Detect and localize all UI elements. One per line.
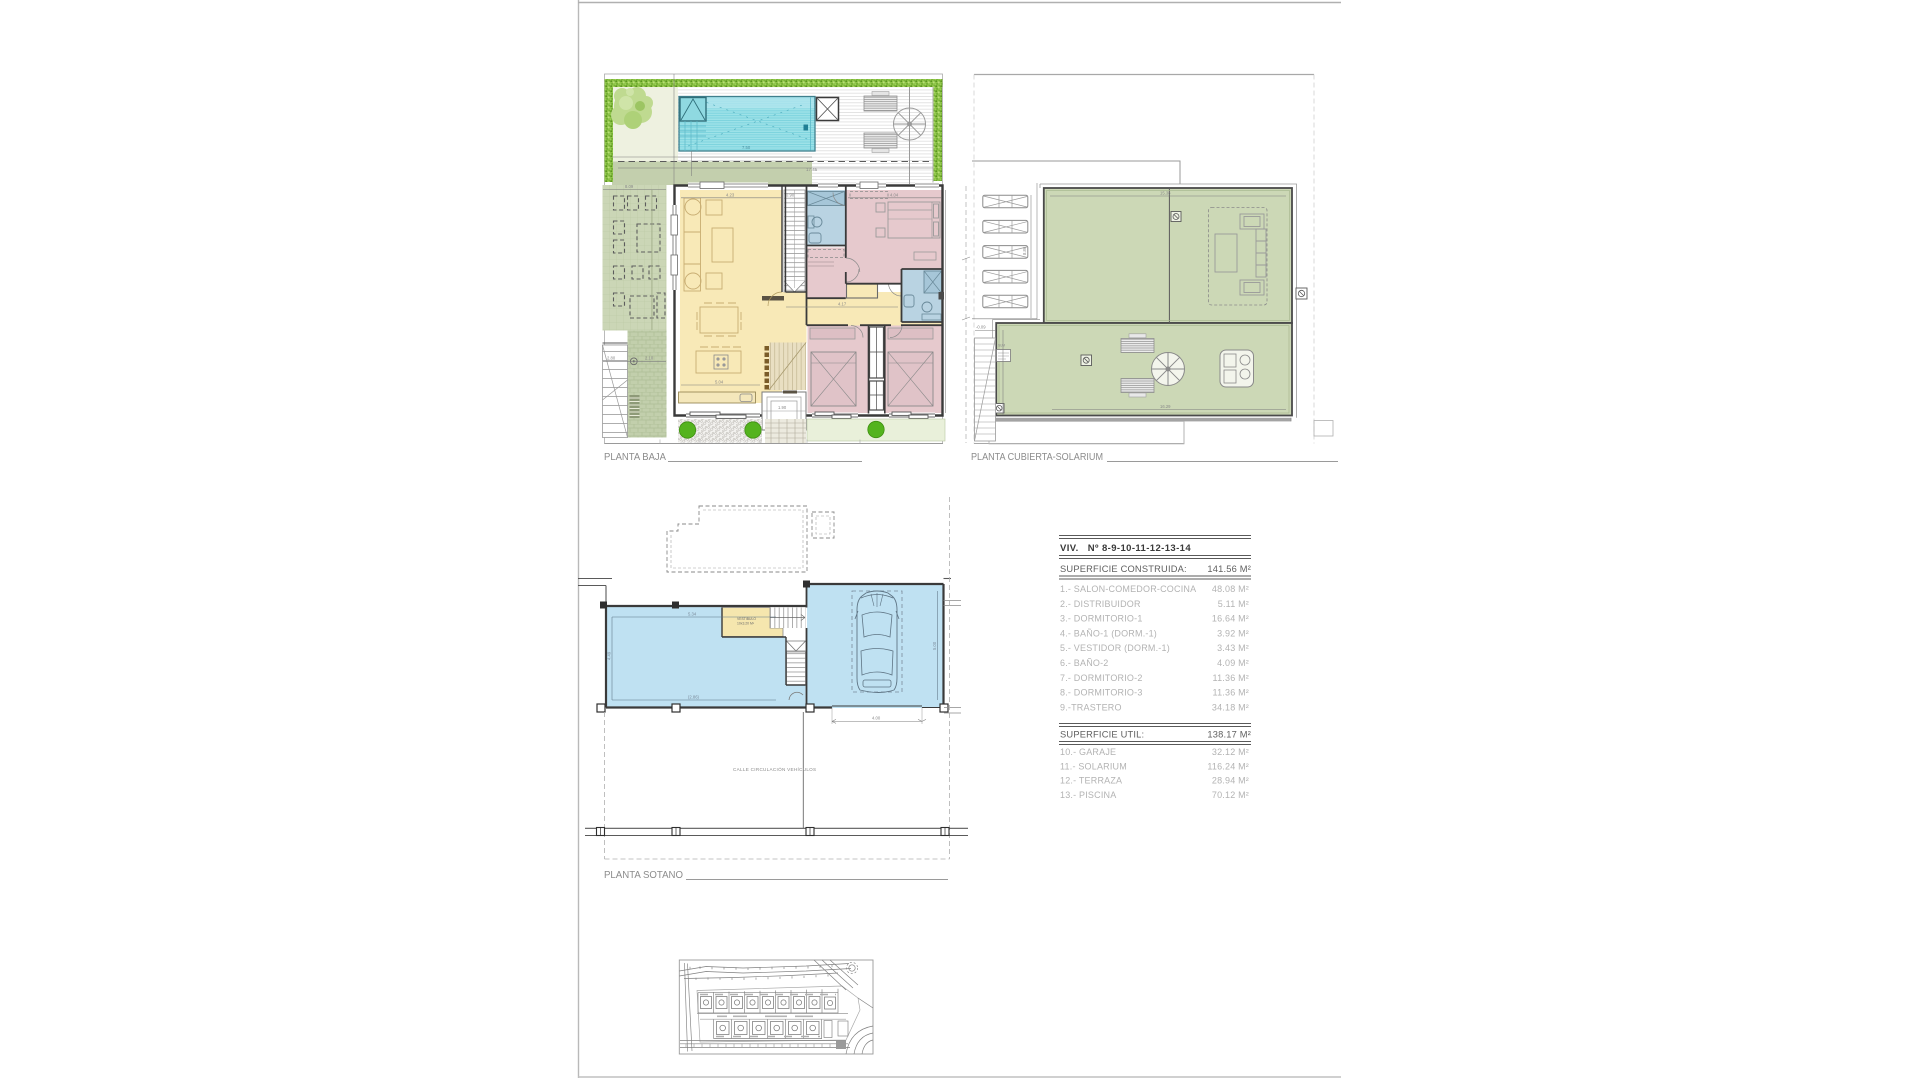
svg-text:4.49: 4.49 (607, 651, 612, 660)
svg-text:SUPERFICIE CONSTRUIDA:: SUPERFICIE CONSTRUIDA: (1060, 564, 1187, 574)
svg-text:116.24 M²: 116.24 M² (1207, 761, 1249, 771)
svg-text:70.12 M²: 70.12 M² (1212, 790, 1249, 800)
svg-text:PLANTA BAJA: PLANTA BAJA (604, 451, 666, 463)
svg-text:SUPERFICIE UTIL:: SUPERFICIE UTIL: (1060, 730, 1144, 740)
svg-text:5.00: 5.00 (932, 641, 937, 650)
svg-text:34.18 M²: 34.18 M² (1212, 702, 1249, 712)
svg-text:2.80: 2.80 (607, 356, 616, 361)
svg-text:VIV. Nº 8-9-10-11-12-13-14: VIV. Nº 8-9-10-11-12-13-14 (1060, 543, 1191, 554)
svg-text:8.09: 8.09 (625, 184, 634, 189)
svg-text:10.- GARAJE: 10.- GARAJE (1060, 747, 1116, 757)
svg-text:5.34: 5.34 (688, 612, 697, 617)
svg-text:4.00: 4.00 (872, 716, 881, 721)
svg-text:9.-TRASTERO: 9.-TRASTERO (1060, 702, 1122, 712)
svg-text:2.10: 2.10 (645, 356, 654, 361)
svg-text:16.64 M²: 16.64 M² (1212, 614, 1249, 624)
svg-text:8.- DORMITORIO-3: 8.- DORMITORIO-3 (1060, 688, 1143, 698)
svg-text:CALLE CIRCULACIÓN VEHÍCULOS: CALLE CIRCULACIÓN VEHÍCULOS (733, 766, 816, 772)
svg-text:7.50: 7.50 (742, 145, 751, 150)
svg-text:11.36 M²: 11.36 M² (1213, 688, 1249, 698)
svg-text:4.23: 4.23 (726, 193, 735, 198)
svg-text:48.08 M²: 48.08 M² (1212, 584, 1249, 594)
svg-text:VESTIBULO: VESTIBULO (737, 617, 756, 621)
svg-text:5.11 M²: 5.11 M² (1218, 599, 1249, 609)
svg-text:5.04: 5.04 (715, 380, 724, 385)
svg-text:3.92 M²: 3.92 M² (1217, 628, 1249, 638)
svg-text:141.56 M²: 141.56 M² (1207, 564, 1251, 574)
svg-text:SUM: SUM (998, 344, 1005, 348)
svg-text:8.86: 8.86 (1022, 246, 1027, 255)
svg-text:7.- DORMITORIO-2: 7.- DORMITORIO-2 (1060, 673, 1143, 683)
svg-text:4.09 M²: 4.09 M² (1217, 658, 1249, 668)
svg-text:10x3.20 M²: 10x3.20 M² (737, 622, 755, 626)
svg-text:32.12 M²: 32.12 M² (1212, 747, 1249, 757)
svg-text:1.- SALON-COMEDOR-COCINA: 1.- SALON-COMEDOR-COCINA (1060, 584, 1196, 594)
svg-text:3.43 M²: 3.43 M² (1217, 643, 1249, 653)
svg-text:4.17: 4.17 (838, 302, 847, 307)
svg-text:4.04: 4.04 (890, 193, 899, 198)
svg-text:-0.09: -0.09 (976, 325, 986, 330)
svg-text:3.- DORMITORIO-1: 3.- DORMITORIO-1 (1060, 614, 1143, 624)
svg-text:17.45: 17.45 (806, 167, 818, 172)
svg-text:1.90: 1.90 (778, 405, 787, 410)
svg-text:138.17 M²: 138.17 M² (1207, 730, 1251, 740)
svg-text:15.38: 15.38 (1160, 191, 1171, 196)
svg-text:(2.86): (2.86) (688, 695, 700, 700)
svg-text:28.94 M²: 28.94 M² (1212, 776, 1249, 786)
svg-text:13.- PISCINA: 13.- PISCINA (1060, 790, 1116, 800)
svg-text:5.- VESTIDOR (DORM.-1): 5.- VESTIDOR (DORM.-1) (1060, 643, 1170, 653)
svg-text:12.- TERRAZA: 12.- TERRAZA (1060, 776, 1122, 786)
svg-text:16.29: 16.29 (1160, 404, 1171, 409)
svg-text:2.- DISTRIBUIDOR: 2.- DISTRIBUIDOR (1060, 599, 1141, 609)
svg-text:PLANTA SOTANO: PLANTA SOTANO (604, 869, 683, 881)
svg-text:PLANTA CUBIERTA-SOLARIUM: PLANTA CUBIERTA-SOLARIUM (971, 451, 1103, 463)
svg-text:4.- BAÑO-1 (DORM.-1): 4.- BAÑO-1 (DORM.-1) (1060, 628, 1157, 638)
svg-text:11.- SOLARIUM: 11.- SOLARIUM (1060, 761, 1127, 771)
svg-text:0.90: 0.90 (786, 193, 795, 198)
svg-text:11.36 M²: 11.36 M² (1213, 673, 1249, 683)
svg-text:6.- BAÑO-2: 6.- BAÑO-2 (1060, 658, 1109, 668)
